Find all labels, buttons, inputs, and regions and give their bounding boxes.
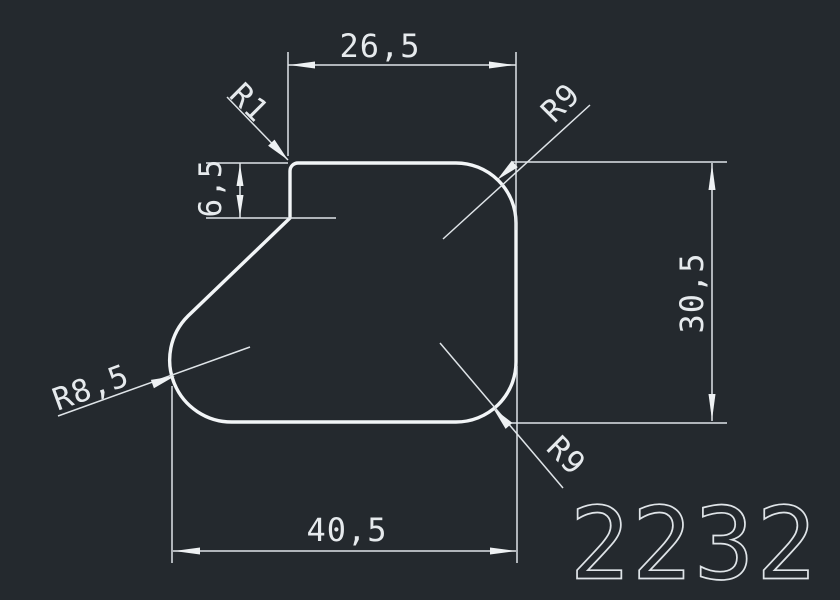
arrowhead-left bbox=[174, 548, 200, 555]
part-number-label: 2232 bbox=[570, 486, 819, 600]
radius-top-right-label: R9 bbox=[534, 76, 587, 129]
arrowhead-down bbox=[237, 195, 244, 217]
radius-bottom-right-label: R9 bbox=[539, 429, 592, 482]
arrowhead-up bbox=[237, 164, 244, 186]
arrowhead-right bbox=[489, 62, 515, 69]
radius-top-left: R1 bbox=[222, 76, 288, 160]
dim-step-height-label: 6,5 bbox=[193, 159, 229, 218]
cad-drawing: 26,5 6,5 30,5 40,5 bbox=[0, 0, 840, 600]
radius-top-left-label: R1 bbox=[222, 76, 275, 129]
arrowhead-right bbox=[490, 548, 516, 555]
cad-drawing-canvas: 26,5 6,5 30,5 40,5 bbox=[0, 0, 840, 600]
dimension-step-height: 6,5 bbox=[193, 159, 336, 219]
radius-bottom-left-label: R8,5 bbox=[48, 358, 134, 419]
arrowhead-down bbox=[709, 394, 716, 420]
dimension-overall-height: 30,5 bbox=[506, 162, 727, 423]
arrowhead-up bbox=[709, 164, 716, 190]
radius-bottom-left: R8,5 bbox=[48, 347, 250, 418]
dim-bottom-width-label: 40,5 bbox=[306, 511, 387, 549]
dim-top-width-label: 26,5 bbox=[339, 27, 420, 65]
dimension-top-width: 26,5 bbox=[288, 27, 516, 230]
arrowhead-left bbox=[289, 62, 315, 69]
arrowhead bbox=[497, 161, 518, 180]
dim-overall-height-label: 30,5 bbox=[673, 252, 711, 333]
dimension-bottom-width: 40,5 bbox=[172, 366, 517, 563]
